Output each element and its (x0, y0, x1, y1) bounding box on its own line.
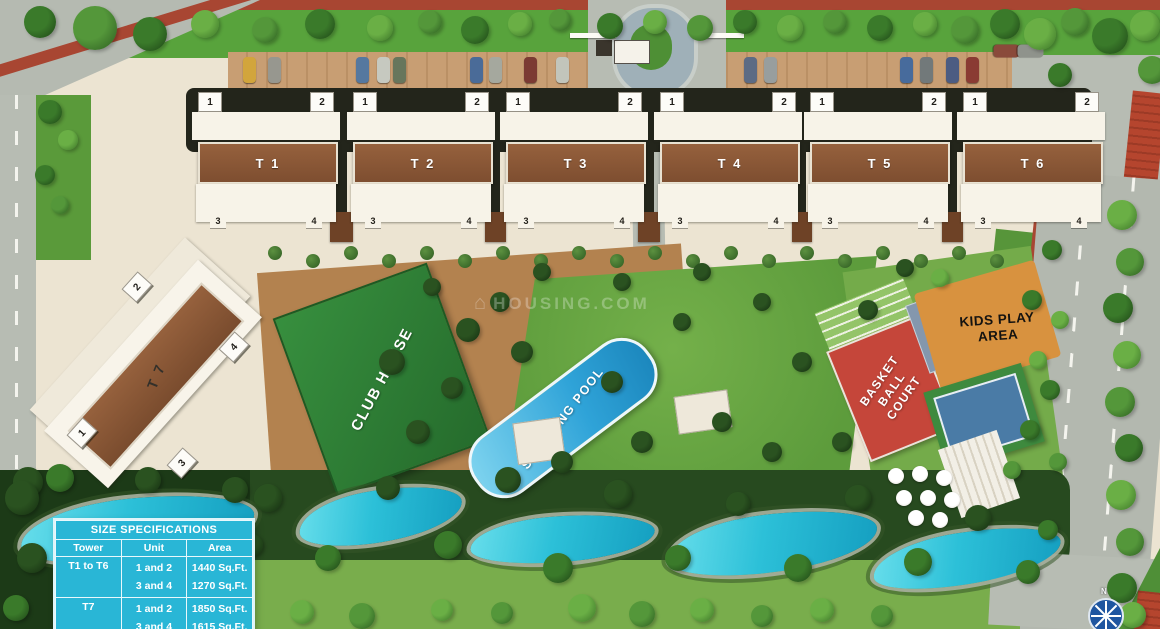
tree (1022, 290, 1042, 310)
tree (543, 553, 573, 583)
tree (441, 377, 463, 399)
tree (46, 464, 74, 492)
tree (871, 605, 893, 627)
tree (951, 16, 979, 44)
tree (1051, 311, 1069, 329)
tree (1116, 528, 1144, 556)
tree (24, 6, 56, 38)
spec-table-title: SIZE SPECIFICATIONS (56, 521, 253, 540)
tree (693, 263, 711, 281)
tree (367, 15, 393, 41)
tree (867, 15, 893, 41)
tree (461, 16, 489, 44)
tree (1107, 200, 1137, 230)
tree (751, 605, 773, 627)
tree (823, 10, 847, 34)
site-plan: 12T 13412T 23412T 33412T 43412T 53412T 6… (0, 0, 1160, 629)
tree (904, 548, 932, 576)
tree (601, 371, 623, 393)
tree (568, 594, 596, 622)
tree (379, 349, 405, 375)
tree (858, 300, 878, 320)
tree (631, 431, 653, 453)
tree (1003, 461, 1021, 479)
tree (965, 505, 991, 531)
tree (613, 273, 631, 291)
tree (762, 442, 782, 462)
tree (733, 10, 757, 34)
tree (315, 545, 341, 571)
size-specifications-table: SIZE SPECIFICATIONSTowerUnitAreaT1 to T6… (55, 520, 253, 629)
tree (222, 477, 248, 503)
tree (376, 476, 400, 500)
spec-tower-cell: T1 to T6 (56, 557, 122, 598)
tree (1115, 434, 1143, 462)
tree (690, 598, 714, 622)
tree (1024, 18, 1056, 50)
tree (1049, 453, 1067, 471)
spec-unit-value: 3 and 4 (124, 577, 185, 595)
spec-area-cell: 1440 Sq.Ft.1270 Sq.Ft. (187, 557, 253, 598)
tree (1113, 341, 1141, 369)
tree (1105, 387, 1135, 417)
spec-area-cell: 1850 Sq.Ft.1615 Sq.Ft. (187, 598, 253, 629)
tree (5, 481, 39, 515)
tree (687, 15, 713, 41)
spec-unit-cell: 1 and 23 and 4 (121, 557, 187, 598)
tree (58, 130, 78, 150)
tree (990, 9, 1020, 39)
tree (1048, 63, 1072, 87)
tree (418, 10, 442, 34)
tree (511, 341, 533, 363)
tree (38, 100, 62, 124)
tree (17, 543, 47, 573)
tree (931, 269, 949, 287)
spec-column-header: Tower (56, 540, 122, 557)
tree (753, 293, 771, 311)
spec-area-value: 1440 Sq.Ft. (189, 559, 250, 577)
tree (913, 12, 937, 36)
tree (533, 263, 551, 281)
tree (495, 467, 521, 493)
tree (810, 598, 834, 622)
spec-area-value: 1615 Sq.Ft. (189, 618, 250, 629)
tree (597, 13, 623, 39)
spec-tower-cell: T7 (56, 598, 122, 629)
tree (51, 196, 69, 214)
tree (673, 313, 691, 331)
tree (1029, 351, 1047, 369)
house-icon: ⌂ (474, 292, 486, 315)
tree (777, 15, 803, 41)
tree (431, 599, 453, 621)
tree (191, 10, 219, 38)
spec-column-header: Area (187, 540, 253, 557)
tree (1130, 11, 1160, 41)
tree (1092, 18, 1128, 54)
compass-north-label: N (1101, 587, 1107, 596)
tree (1040, 380, 1060, 400)
tree (784, 554, 812, 582)
spec-unit-cell: 1 and 23 and 4 (121, 598, 187, 629)
spec-unit-value: 1 and 2 (124, 559, 185, 577)
tree (434, 531, 462, 559)
tree (1016, 560, 1040, 584)
spec-unit-value: 1 and 2 (124, 600, 185, 618)
spec-area-value: 1850 Sq.Ft. (189, 600, 250, 618)
tree (73, 6, 117, 50)
tree (1061, 8, 1089, 36)
tree (643, 10, 667, 34)
spec-unit-value: 3 and 4 (124, 618, 185, 629)
tree (508, 12, 532, 36)
tree (629, 601, 655, 627)
spec-column-header: Unit (121, 540, 187, 557)
tree (792, 352, 812, 372)
tree (133, 17, 167, 51)
tree (712, 412, 732, 432)
tree (845, 485, 871, 511)
tree (1038, 520, 1058, 540)
tree (1138, 56, 1160, 84)
tree (252, 17, 278, 43)
tree (1020, 420, 1040, 440)
tree (832, 432, 852, 452)
tree (896, 259, 914, 277)
tree (604, 480, 632, 508)
tree (1042, 240, 1062, 260)
watermark-text: HOUSING.COM (493, 294, 650, 314)
tree (406, 420, 430, 444)
tree (1103, 293, 1133, 323)
tree (35, 165, 55, 185)
tree (456, 318, 480, 342)
tree (549, 9, 571, 31)
tree (1116, 248, 1144, 276)
tree (349, 603, 375, 629)
tree (290, 600, 314, 624)
spec-area-value: 1270 Sq.Ft. (189, 577, 250, 595)
tree (551, 451, 573, 473)
tree (254, 484, 282, 512)
tree (1106, 480, 1136, 510)
tree (135, 467, 161, 493)
tree (305, 9, 335, 39)
watermark: ⌂ HOUSING.COM (474, 292, 650, 315)
tree (3, 595, 29, 621)
compass-icon: N (1088, 598, 1124, 629)
tree (423, 278, 441, 296)
tree (726, 492, 750, 516)
tree (665, 545, 691, 571)
tree (491, 602, 513, 624)
